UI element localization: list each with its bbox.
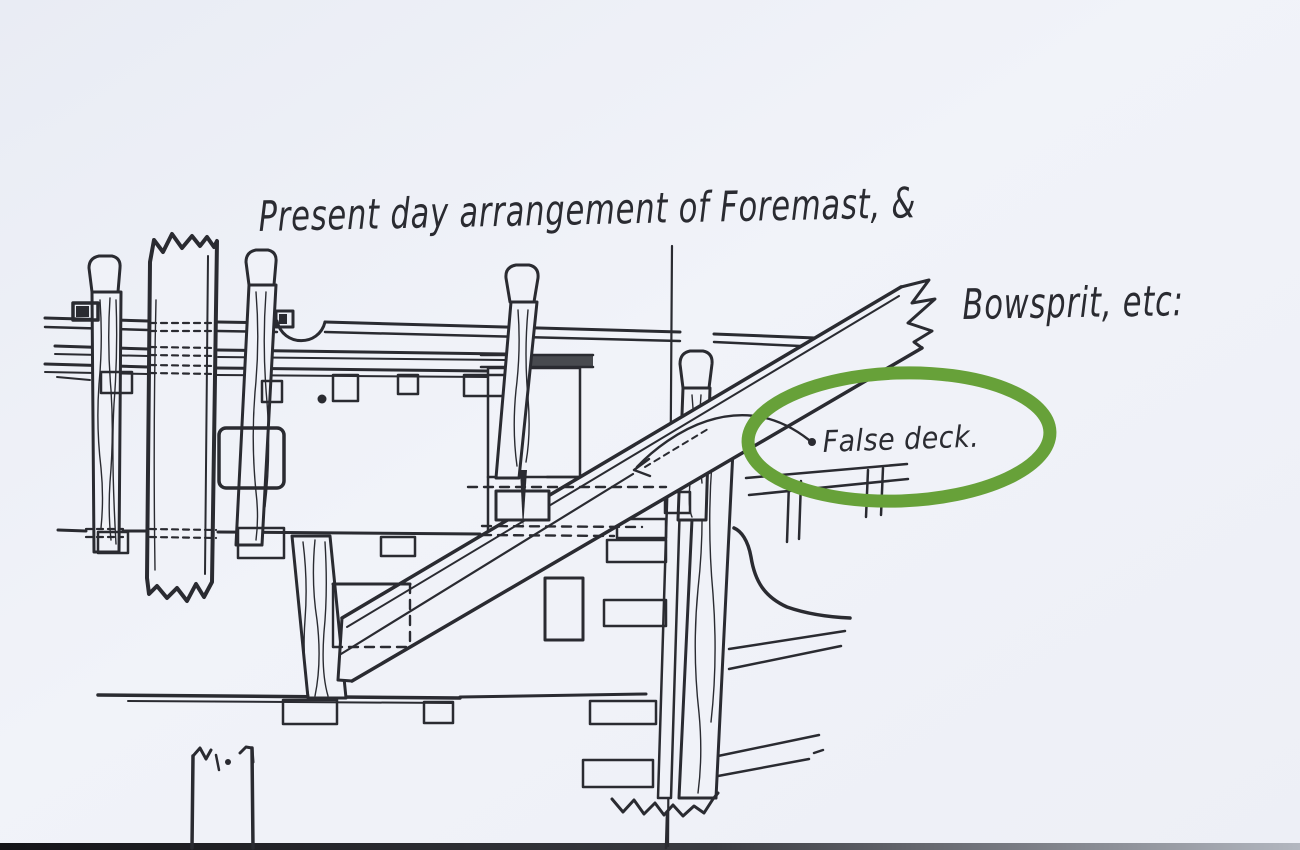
- ink-dot: [318, 395, 327, 404]
- second-bitt-knob: [246, 250, 276, 285]
- scanned-book-page: Present day arrangement of Foremast, & B…: [0, 0, 1300, 850]
- title-line-2: Bowsprit, etc:: [962, 276, 1184, 329]
- foremast: [147, 234, 217, 601]
- bowsprit-bitt-knob: [680, 351, 712, 388]
- ship-diagram-canvas: [0, 0, 1300, 850]
- false-deck-label: False deck.: [822, 420, 980, 460]
- third-bitt-knob: [506, 265, 538, 302]
- photo-bottom-edge-shadow: [0, 843, 1300, 850]
- left-bitt-knob: [89, 256, 120, 292]
